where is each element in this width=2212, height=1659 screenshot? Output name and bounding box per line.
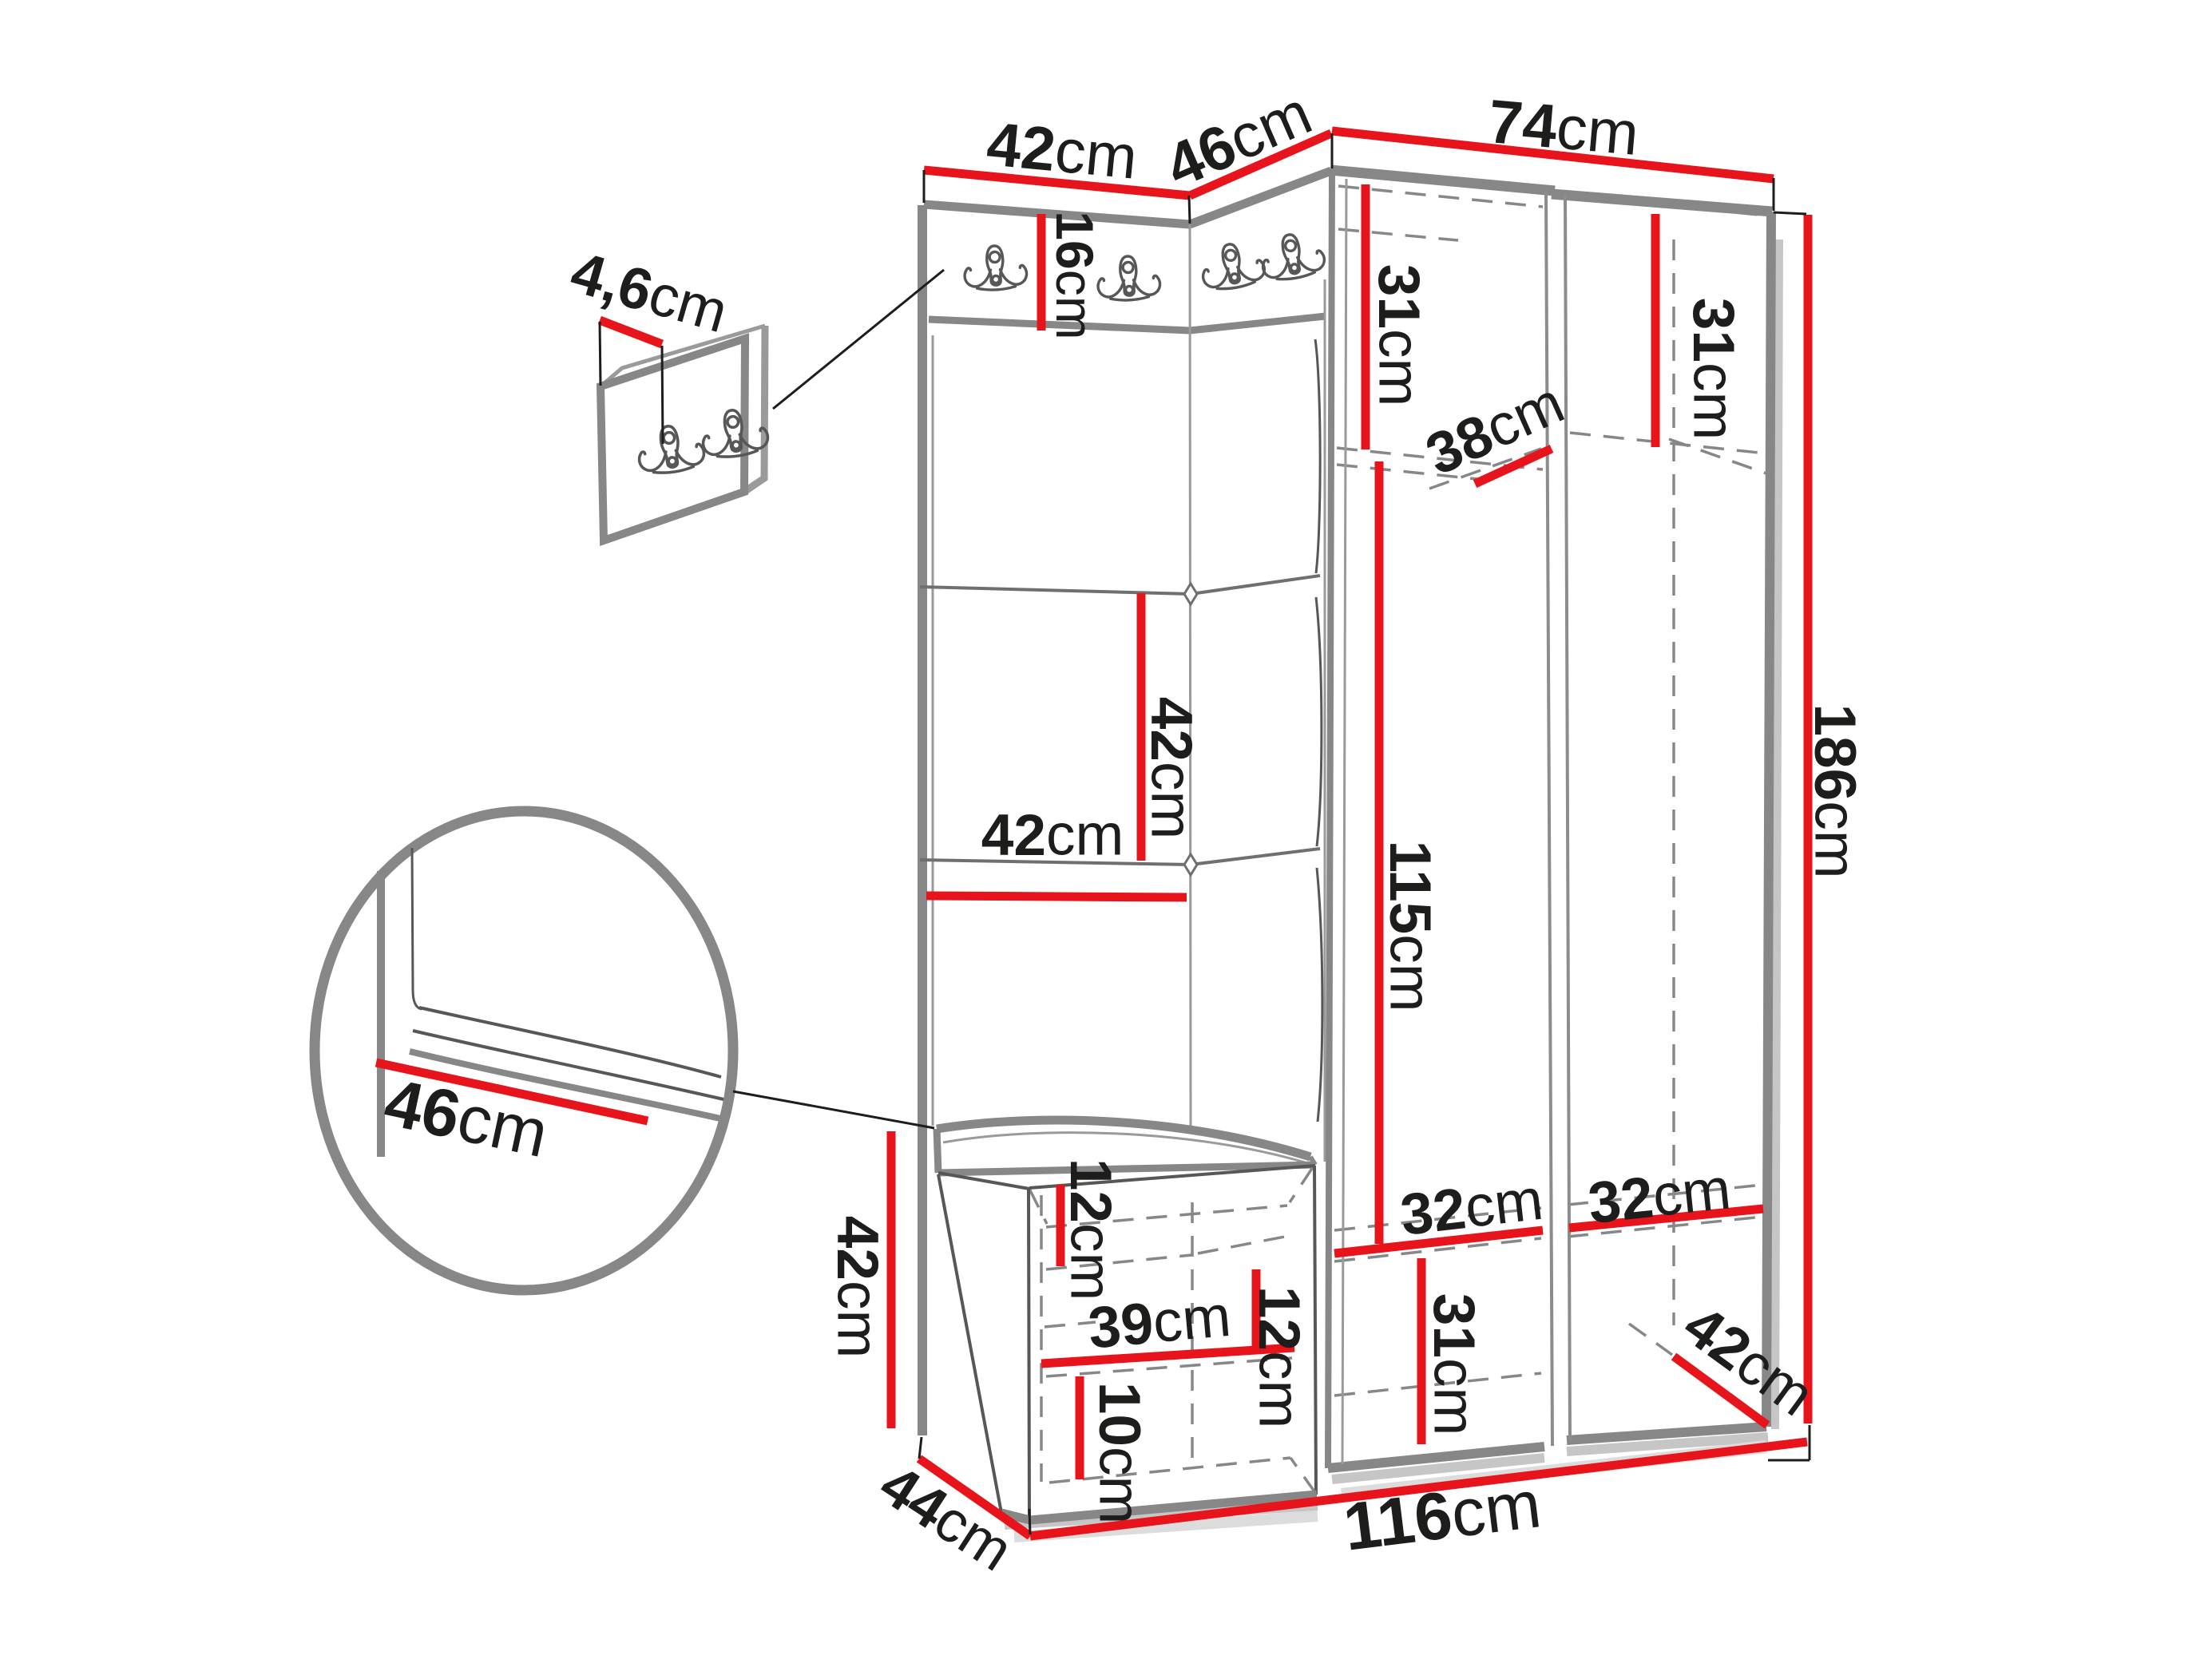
svg-text:42cm: 42cm — [981, 803, 1124, 868]
svg-text:12cm: 12cm — [1059, 1158, 1124, 1301]
svg-text:42cm: 42cm — [826, 1216, 890, 1359]
svg-text:39cm: 39cm — [1086, 1284, 1234, 1360]
svg-text:42cm: 42cm — [984, 109, 1140, 192]
svg-text:12cm: 12cm — [1247, 1286, 1312, 1429]
svg-text:38cm: 38cm — [1417, 370, 1573, 488]
svg-text:4,6cm: 4,6cm — [564, 240, 734, 346]
svg-text:42cm: 42cm — [1140, 697, 1204, 840]
svg-text:186cm: 186cm — [1803, 703, 1868, 878]
svg-text:74cm: 74cm — [1485, 87, 1641, 168]
svg-text:10cm: 10cm — [1088, 1382, 1152, 1525]
svg-text:44cm: 44cm — [869, 1451, 1024, 1583]
svg-text:16cm: 16cm — [1045, 211, 1104, 339]
svg-text:31cm: 31cm — [1422, 1293, 1487, 1436]
svg-text:31cm: 31cm — [1682, 298, 1746, 441]
svg-text:116cm: 116cm — [1339, 1466, 1544, 1564]
svg-text:32cm: 32cm — [1585, 1156, 1734, 1235]
svg-text:115cm: 115cm — [1378, 840, 1443, 1012]
svg-text:31cm: 31cm — [1367, 264, 1432, 407]
